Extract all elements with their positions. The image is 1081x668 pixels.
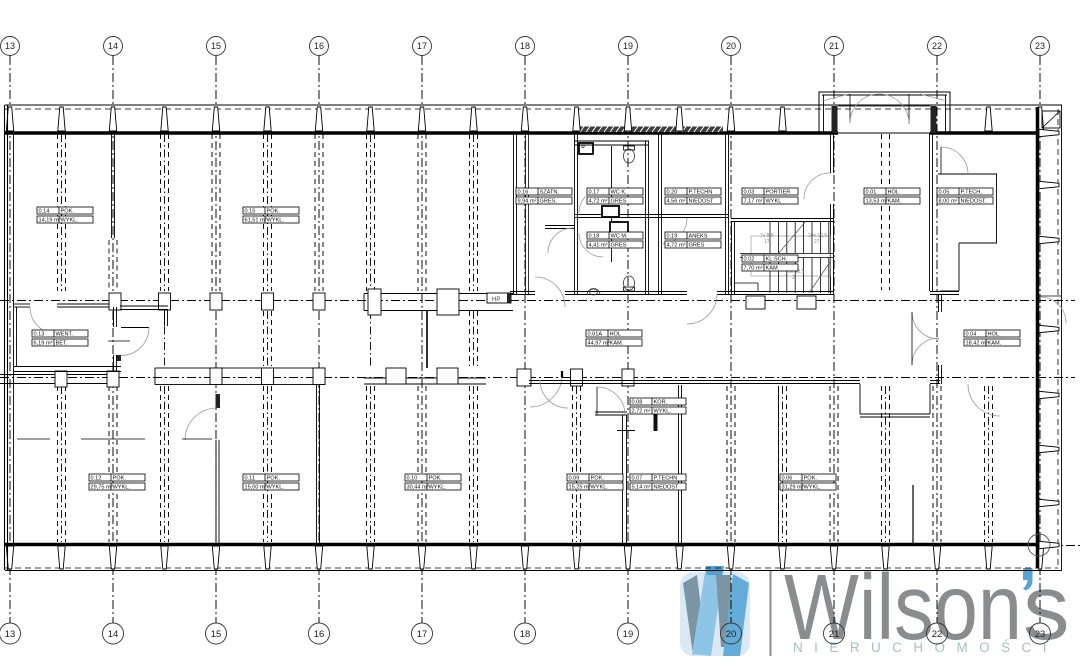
- svg-text:21: 21: [829, 629, 840, 640]
- svg-text:22: 22: [932, 41, 942, 51]
- svg-text:61,51 m²: 61,51 m²: [245, 218, 267, 224]
- svg-text:HP: HP: [492, 297, 500, 303]
- svg-text:0.11: 0.11: [245, 476, 255, 482]
- svg-text:WC M.: WC M.: [611, 234, 629, 240]
- svg-text:WYKL.: WYKL.: [804, 485, 822, 491]
- svg-text:0.04: 0.04: [966, 332, 977, 338]
- svg-text:27: 27: [814, 239, 820, 245]
- svg-text:18: 18: [520, 41, 530, 51]
- svg-text:16: 16: [314, 41, 324, 51]
- svg-text:WYKL.: WYKL.: [591, 485, 609, 491]
- svg-text:POK.: POK.: [429, 476, 443, 482]
- svg-text:14: 14: [108, 41, 118, 51]
- svg-text:19: 19: [623, 41, 633, 51]
- svg-text:POK.: POK.: [61, 209, 75, 215]
- svg-text:0.17: 0.17: [589, 190, 600, 196]
- svg-text:WYKL.: WYKL.: [267, 485, 285, 491]
- svg-text:WYKL.: WYKL.: [113, 485, 131, 491]
- svg-text:0.15: 0.15: [245, 209, 256, 215]
- svg-text:17: 17: [417, 41, 427, 51]
- svg-text:NIERUCHOMOŚCI: NIERUCHOMOŚCI: [793, 640, 1053, 655]
- svg-text:KAM.: KAM.: [610, 341, 624, 347]
- svg-text:0.01: 0.01: [866, 190, 877, 196]
- svg-text:WYKL: WYKL: [766, 199, 782, 205]
- svg-text:13,53 m²: 13,53 m²: [866, 199, 888, 205]
- svg-text:13: 13: [5, 41, 15, 51]
- svg-text:4,56 m²: 4,56 m²: [667, 199, 686, 205]
- svg-text:GRES: GRES: [689, 243, 705, 249]
- svg-text:15,25 m²: 15,25 m²: [569, 485, 591, 491]
- svg-text:4,72 m²: 4,72 m²: [667, 243, 686, 249]
- svg-text:5,14 m²: 5,14 m²: [632, 485, 651, 491]
- svg-text:WYKL.: WYKL.: [429, 485, 447, 491]
- svg-text:7,70 m²: 7,70 m²: [744, 266, 763, 272]
- svg-text:21: 21: [829, 41, 839, 51]
- svg-text:2: 2: [792, 275, 795, 281]
- svg-text:20: 20: [726, 41, 736, 51]
- svg-text:POK.: POK.: [267, 209, 281, 215]
- svg-text:18,42 m²: 18,42 m²: [966, 341, 988, 347]
- svg-text:4,72 m²: 4,72 m²: [589, 199, 608, 205]
- svg-text:POK.: POK.: [113, 476, 127, 482]
- svg-text:0.03: 0.03: [744, 190, 755, 196]
- svg-text:GRES: GRES: [611, 199, 627, 205]
- svg-text:15,00 m²: 15,00 m²: [245, 485, 267, 491]
- svg-text:NIEDOST: NIEDOST: [689, 199, 714, 205]
- svg-text:8,00 m²: 8,00 m²: [939, 199, 958, 205]
- svg-text:0.10: 0.10: [407, 476, 418, 482]
- svg-text:0.14: 0.14: [39, 209, 50, 215]
- svg-text:20: 20: [726, 629, 737, 640]
- svg-text:WENT.: WENT.: [56, 332, 74, 338]
- svg-text:WYKL.: WYKL.: [267, 218, 285, 224]
- svg-text:WYKL.: WYKL.: [654, 409, 672, 415]
- svg-text:PORTIER: PORTIER: [766, 190, 791, 196]
- svg-text:14: 14: [108, 629, 119, 640]
- svg-text:19: 19: [623, 629, 634, 640]
- svg-text:44,97 m²: 44,97 m²: [588, 341, 610, 347]
- svg-text:17: 17: [417, 629, 428, 640]
- svg-text:P.TECH.: P.TECH.: [961, 190, 983, 196]
- svg-text:WC K.: WC K.: [611, 190, 628, 196]
- svg-text:2,72 m²: 2,72 m²: [632, 409, 651, 415]
- svg-text:0.12: 0.12: [91, 476, 102, 482]
- svg-text:KAM.: KAM.: [766, 266, 780, 272]
- svg-text:16: 16: [314, 629, 325, 640]
- svg-text:0.07: 0.07: [632, 476, 643, 482]
- svg-text:POK.: POK.: [591, 476, 605, 482]
- svg-text:0.02: 0.02: [744, 257, 755, 263]
- svg-text:P.TECHN: P.TECHN: [689, 190, 713, 196]
- svg-text:0.13: 0.13: [34, 332, 45, 338]
- svg-text:22: 22: [932, 629, 943, 640]
- svg-text:KAM.: KAM.: [888, 199, 902, 205]
- svg-text:HOL: HOL: [988, 332, 1000, 338]
- svg-text:29,75 m²: 29,75 m²: [91, 485, 113, 491]
- svg-text:13: 13: [5, 629, 16, 640]
- svg-text:NIEDOST.: NIEDOST.: [961, 199, 987, 205]
- svg-text:15: 15: [211, 629, 222, 640]
- svg-text:0.19: 0.19: [667, 234, 678, 240]
- svg-text:HOL: HOL: [888, 190, 900, 196]
- svg-text:9,94 m²: 9,94 m²: [518, 199, 537, 205]
- svg-text:WYKL.: WYKL.: [61, 218, 79, 224]
- svg-text:ANEKS: ANEKS: [689, 234, 708, 240]
- svg-text:NIEDOST: NIEDOST: [654, 485, 679, 491]
- svg-text:0.16: 0.16: [518, 190, 529, 196]
- svg-text:0.06: 0.06: [782, 476, 793, 482]
- svg-text:KOR.: KOR.: [654, 400, 668, 406]
- svg-text:4,41 m²: 4,41 m²: [589, 243, 608, 249]
- svg-text:KAM.: KAM.: [988, 341, 1002, 347]
- svg-text:23: 23: [1035, 41, 1045, 51]
- svg-text:30,44 m²: 30,44 m²: [407, 485, 429, 491]
- svg-text:KL.SCH.: KL.SCH.: [766, 257, 788, 263]
- svg-text:18: 18: [520, 629, 531, 640]
- svg-text:31,29 m²: 31,29 m²: [782, 485, 804, 491]
- svg-text:6,19 m²: 6,19 m²: [34, 341, 53, 347]
- svg-text:SZATN.: SZATN.: [540, 190, 560, 196]
- svg-text:HOL: HOL: [610, 332, 622, 338]
- svg-text:0.01A: 0.01A: [588, 332, 603, 338]
- svg-text:POK.: POK.: [804, 476, 818, 482]
- svg-text:15: 15: [211, 41, 221, 51]
- svg-text:GRES.: GRES.: [540, 199, 558, 205]
- svg-text:0.05: 0.05: [939, 190, 950, 196]
- svg-text:0.08: 0.08: [632, 400, 643, 406]
- svg-text:0.18: 0.18: [589, 234, 600, 240]
- svg-text:0.20: 0.20: [667, 190, 678, 196]
- svg-text:BET.: BET.: [56, 341, 68, 347]
- svg-text:GRES: GRES: [611, 243, 627, 249]
- svg-text:POK.: POK.: [267, 476, 281, 482]
- svg-text:0.09: 0.09: [569, 476, 580, 482]
- svg-text:P.TECHN: P.TECHN: [654, 476, 678, 482]
- svg-text:14,19 m²: 14,19 m²: [39, 218, 61, 224]
- svg-text:23: 23: [1035, 629, 1046, 640]
- svg-text:7,17 m²: 7,17 m²: [744, 199, 763, 205]
- svg-text:17: 17: [764, 239, 770, 245]
